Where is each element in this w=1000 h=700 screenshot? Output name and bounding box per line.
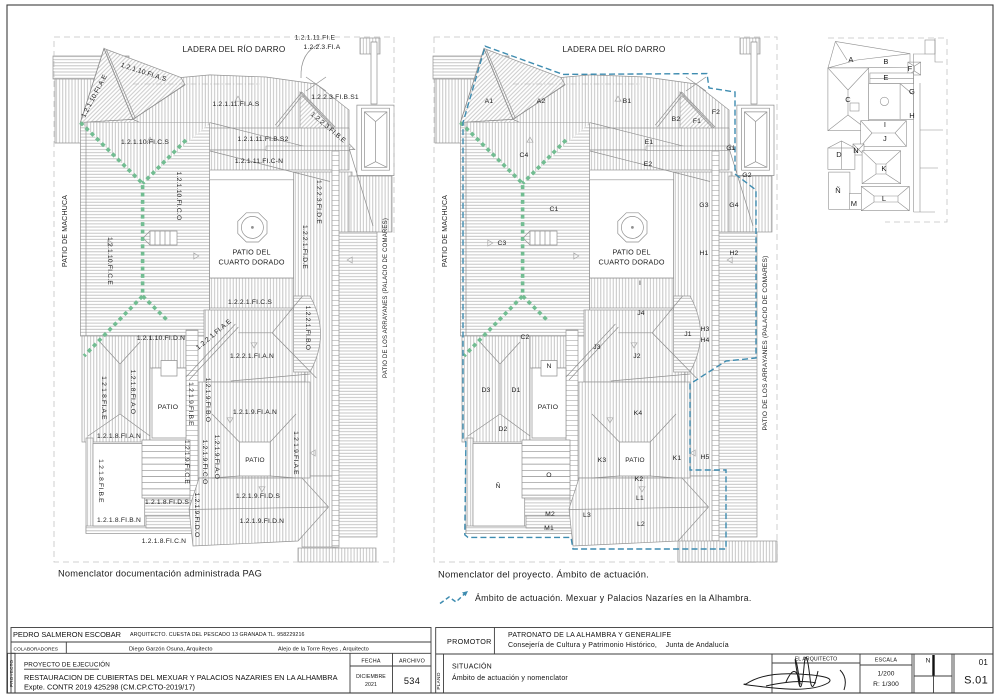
svg-text:1.2.1.8.FI.D.S: 1.2.1.8.FI.D.S — [145, 499, 189, 506]
svg-text:Consejería de Cultura y Patrim: Consejería de Cultura y Patrimonio Histó… — [508, 642, 729, 649]
svg-text:H4: H4 — [700, 337, 709, 344]
svg-text:SITUACIÓN: SITUACIÓN — [452, 662, 492, 671]
svg-text:LADERA DEL RÍO DARRO: LADERA DEL RÍO DARRO — [563, 44, 666, 54]
svg-text:B2: B2 — [672, 116, 681, 123]
svg-text:C: C — [845, 95, 851, 104]
svg-text:1.2.1.11.FI.B.S2: 1.2.1.11.FI.B.S2 — [237, 136, 288, 143]
svg-text:N: N — [926, 658, 931, 665]
svg-text:G4: G4 — [729, 202, 738, 209]
svg-text:1.2.1.8.FI.C.N: 1.2.1.8.FI.C.N — [142, 538, 186, 545]
svg-text:1.2.1.9.FI.D.N: 1.2.1.9.FI.D.N — [240, 518, 284, 525]
svg-text:G3: G3 — [699, 202, 708, 209]
svg-text:1.2.1.9.FI.D.S: 1.2.1.9.FI.D.S — [236, 493, 280, 500]
svg-text:O: O — [546, 472, 552, 479]
svg-text:D3: D3 — [481, 387, 490, 394]
svg-text:K1: K1 — [673, 455, 682, 462]
svg-text:DICIEMBRE: DICIEMBRE — [356, 674, 386, 680]
svg-text:M1: M1 — [544, 525, 554, 532]
svg-text:1.2.1.8.FI.A.N: 1.2.1.8.FI.A.N — [97, 433, 141, 440]
svg-text:PATIO: PATIO — [158, 404, 178, 411]
svg-text:PROYECTO: PROYECTO — [9, 659, 14, 687]
svg-text:S.01: S.01 — [964, 675, 988, 687]
svg-text:L3: L3 — [583, 512, 591, 519]
svg-text:1.2.1.10.FI.C.E: 1.2.1.10.FI.C.E — [106, 237, 113, 285]
svg-text:I: I — [884, 120, 886, 129]
svg-text:LADERA DEL RÍO DARRO: LADERA DEL RÍO DARRO — [183, 44, 286, 54]
svg-text:E1: E1 — [645, 139, 654, 146]
svg-text:C4: C4 — [519, 152, 528, 159]
svg-text:PATIO DEL: PATIO DEL — [612, 248, 650, 257]
svg-text:ARQUITECTO. CUESTA DEL PESCAD: ARQUITECTO. CUESTA DEL PESCADO 13 GRANAD… — [130, 632, 305, 638]
svg-text:K4: K4 — [634, 410, 643, 417]
svg-text:H2: H2 — [729, 250, 738, 257]
svg-text:K3: K3 — [598, 457, 607, 464]
svg-text:Alejo de la Torre Reyes , Arqu: Alejo de la Torre Reyes , Arquitecto — [278, 647, 369, 653]
svg-text:K: K — [881, 164, 886, 173]
svg-text:2021: 2021 — [365, 682, 377, 688]
svg-text:01: 01 — [979, 658, 989, 667]
svg-text:J: J — [883, 134, 887, 143]
svg-text:H: H — [909, 111, 915, 120]
svg-text:N: N — [546, 363, 551, 370]
svg-text:FECHA: FECHA — [361, 659, 380, 665]
svg-text:PATIO DE MACHUCA: PATIO DE MACHUCA — [62, 195, 69, 267]
svg-text:D2: D2 — [498, 426, 507, 433]
svg-text:J3: J3 — [593, 344, 601, 351]
svg-text:COLABORADORES: COLABORADORES — [14, 647, 59, 653]
svg-text:PROYECTO DE EJECUCIÓN: PROYECTO DE EJECUCIÓN — [24, 659, 110, 668]
svg-text:D1: D1 — [511, 387, 520, 394]
svg-text:1.2.2.3.FI.D.E: 1.2.2.3.FI.D.E — [315, 180, 322, 224]
svg-text:1.2.1.9.FI.A.N: 1.2.1.9.FI.A.N — [233, 409, 277, 416]
svg-text:1.2.1.11.FI.A.S: 1.2.1.11.FI.A.S — [212, 101, 259, 108]
svg-text:1.2.1.9.FI.C.O: 1.2.1.9.FI.C.O — [201, 440, 208, 485]
svg-text:F2: F2 — [712, 109, 720, 116]
svg-text:CUARTO DORADO: CUARTO DORADO — [598, 258, 664, 267]
svg-text:C2: C2 — [520, 334, 529, 341]
svg-text:J2: J2 — [633, 353, 641, 360]
svg-text:1.2.1.9.FI.C.E: 1.2.1.9.FI.C.E — [183, 440, 190, 484]
svg-text:B: B — [883, 57, 888, 66]
svg-text:C1: C1 — [549, 206, 558, 213]
svg-text:1.2.2.1.FI.D.E: 1.2.2.1.FI.D.E — [301, 225, 308, 269]
svg-text:A1: A1 — [485, 98, 494, 105]
svg-text:1.2.1.10.FI.C.O: 1.2.1.10.FI.C.O — [175, 172, 182, 221]
svg-text:1.2.1.8.FI.A.E: 1.2.1.8.FI.A.E — [100, 376, 107, 420]
svg-text:J1: J1 — [684, 331, 692, 338]
svg-text:PATIO: PATIO — [538, 404, 558, 411]
svg-text:A2: A2 — [537, 98, 546, 105]
svg-text:1.2.2.1.FI.A.N: 1.2.2.1.FI.A.N — [230, 353, 274, 360]
svg-text:J4: J4 — [637, 310, 645, 317]
svg-text:PATIO DE MACHUCA: PATIO DE MACHUCA — [442, 195, 449, 267]
svg-text:PATIO DE LOS ARRAYANES (PALACI: PATIO DE LOS ARRAYANES (PALACIO DE COMAR… — [762, 255, 769, 430]
svg-text:M2: M2 — [545, 511, 555, 518]
svg-text:H3: H3 — [700, 326, 709, 333]
svg-text:1.2.2.1.FI.C.S: 1.2.2.1.FI.C.S — [228, 299, 272, 306]
svg-text:PEDRO SALMERON ESCOBAR: PEDRO SALMERON ESCOBAR — [13, 630, 121, 639]
svg-text:K2: K2 — [635, 476, 644, 483]
svg-text:R: 1/300: R: 1/300 — [873, 681, 899, 688]
svg-text:ESCALA: ESCALA — [875, 658, 898, 664]
svg-text:A: A — [848, 55, 853, 64]
svg-text:1.2.1.8.FI.A.O: 1.2.1.8.FI.A.O — [129, 370, 136, 414]
svg-text:L: L — [882, 194, 886, 203]
svg-text:534: 534 — [404, 676, 420, 686]
svg-text:Nomenclator del proyecto. Ámbi: Nomenclator del proyecto. Ámbito de actu… — [438, 569, 649, 580]
svg-text:M: M — [851, 199, 857, 208]
svg-text:Ámbito de actuación y nomencla: Ámbito de actuación y nomenclator — [452, 673, 568, 682]
svg-text:1.2.1.8.FI.B.E: 1.2.1.8.FI.B.E — [97, 459, 104, 503]
svg-text:1.2.1.11.FI.C-N: 1.2.1.11.FI.C-N — [235, 158, 283, 165]
svg-text:CUARTO DORADO: CUARTO DORADO — [218, 258, 284, 267]
svg-text:D: D — [836, 150, 842, 159]
svg-text:1.2.1.9.FI.D.O: 1.2.1.9.FI.D.O — [193, 493, 200, 538]
svg-text:G1: G1 — [726, 145, 735, 152]
svg-text:PROMOTOR: PROMOTOR — [447, 637, 492, 646]
svg-text:RESTAURACION DE CUBIERTAS DEL: RESTAURACION DE CUBIERTAS DEL MEXUAR Y P… — [24, 673, 338, 682]
svg-text:PATRONATO DE LA ALHAMBRA Y GEN: PATRONATO DE LA ALHAMBRA Y GENERALIFE — [508, 632, 672, 639]
svg-text:Ámbito de actuación. Mexuar y: Ámbito de actuación. Mexuar y Palacios N… — [475, 593, 752, 603]
svg-text:1.2.2.3.FI.B.S1: 1.2.2.3.FI.B.S1 — [311, 94, 359, 101]
svg-text:E: E — [883, 73, 888, 82]
svg-text:1.2.1.9.FI.B.O: 1.2.1.9.FI.B.O — [204, 378, 211, 422]
svg-text:G2: G2 — [742, 172, 751, 179]
svg-text:PLANO: PLANO — [436, 672, 442, 689]
svg-text:H5: H5 — [700, 454, 709, 461]
svg-text:EL ARQUITECTO: EL ARQUITECTO — [795, 657, 838, 663]
svg-text:PATIO DE LOS ARRAYANES (PALACI: PATIO DE LOS ARRAYANES (PALACIO DE COMAR… — [383, 218, 389, 378]
svg-text:1.2.1.8.FI.B.N: 1.2.1.8.FI.B.N — [97, 517, 141, 524]
svg-text:PATIO: PATIO — [625, 457, 645, 464]
svg-text:H1: H1 — [699, 250, 708, 257]
svg-text:L1: L1 — [636, 495, 644, 502]
svg-text:Ñ: Ñ — [835, 186, 841, 195]
svg-text:E2: E2 — [644, 161, 653, 168]
svg-text:B1: B1 — [623, 98, 632, 105]
svg-text:PATIO: PATIO — [245, 457, 265, 464]
svg-text:1/200: 1/200 — [877, 671, 894, 678]
svg-text:Ñ: Ñ — [495, 481, 500, 490]
svg-text:1.2.1.9.FI.A.O: 1.2.1.9.FI.A.O — [213, 435, 220, 479]
svg-text:Nomenclator documentación admi: Nomenclator documentación administrada P… — [58, 569, 262, 579]
svg-text:PATIO DEL: PATIO DEL — [232, 248, 270, 257]
svg-text:1.2.1.9.FI.B.E: 1.2.1.9.FI.B.E — [187, 382, 194, 426]
svg-text:1.2.1.9.FI.A.E: 1.2.1.9.FI.A.E — [292, 431, 299, 475]
svg-text:C3: C3 — [497, 240, 506, 247]
svg-text:1.2.1.10.FI.D.N: 1.2.1.10.FI.D.N — [137, 335, 185, 342]
svg-text:1.2.2.3.FI.A: 1.2.2.3.FI.A — [304, 44, 341, 51]
svg-text:Diego Garzón Osuna, Arquitecto: Diego Garzón Osuna, Arquitecto — [129, 647, 213, 653]
svg-text:L2: L2 — [637, 521, 645, 528]
svg-text:N: N — [853, 146, 859, 155]
svg-text:F: F — [908, 64, 913, 73]
svg-text:F1: F1 — [693, 118, 701, 125]
svg-text:1.2.2.1.FI.B.O: 1.2.2.1.FI.B.O — [304, 306, 311, 350]
svg-text:G: G — [909, 87, 915, 96]
svg-text:I: I — [639, 280, 641, 287]
svg-text:Expte. CONTR 2019 425298 (CM.C: Expte. CONTR 2019 425298 (CM.CP.CTO-2019… — [24, 683, 195, 692]
svg-text:ARCHIVO: ARCHIVO — [399, 659, 425, 665]
svg-text:1.2.1.11.FI.E: 1.2.1.11.FI.E — [295, 35, 336, 42]
svg-text:1.2.1.10.FI.C.S: 1.2.1.10.FI.C.S — [121, 139, 169, 146]
